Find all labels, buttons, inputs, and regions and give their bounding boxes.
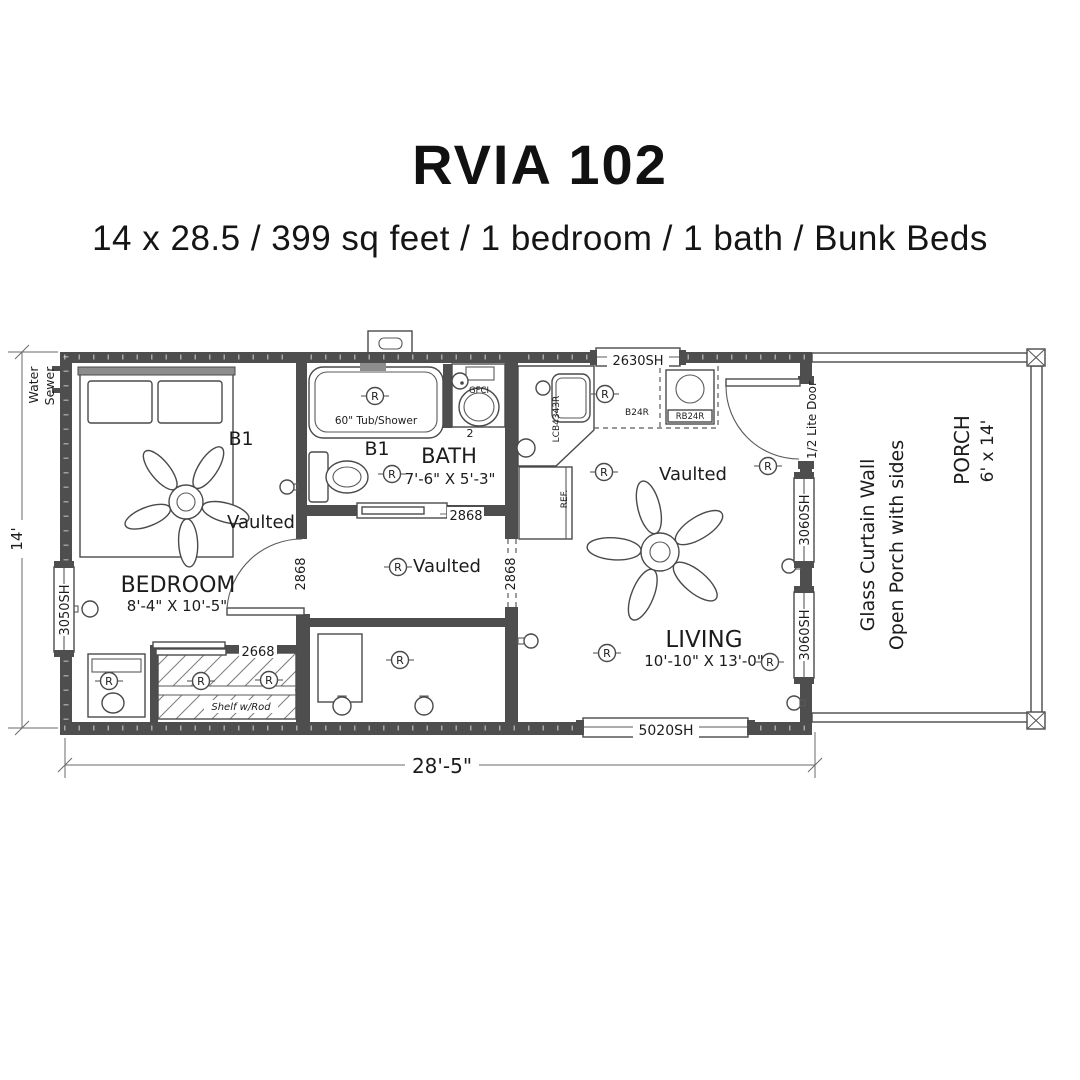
living-label: LIVING — [665, 627, 742, 653]
bedroom-door-size: 2868 — [294, 557, 309, 590]
dimension-width: 28'-5" — [58, 732, 822, 778]
svg-text:R: R — [371, 390, 379, 403]
porch-label: PORCH — [950, 415, 974, 485]
bath-label: BATH — [421, 444, 477, 468]
svg-text:R: R — [600, 466, 608, 479]
vanity-dim: 2 — [467, 427, 474, 440]
svg-text:R: R — [388, 468, 396, 481]
porch-note-line1: Glass Curtain Wall — [857, 459, 879, 632]
window-2630: 2630SH — [590, 348, 686, 369]
exterior-fixture — [368, 331, 412, 355]
bedroom-label: BEDROOM — [121, 573, 236, 598]
floor-plan: 2868 2868 2868 — [0, 0, 1080, 1080]
wall-fixtures — [518, 559, 805, 710]
tub-label: 60" Tub/Shower — [335, 415, 418, 427]
living-front-window-label: 5020SH — [638, 723, 693, 739]
svg-text:R: R — [105, 675, 113, 688]
receptacle-symbol: R — [384, 559, 412, 576]
receptacle-symbol: R — [754, 458, 782, 475]
window-3060-lower: 3060SH — [794, 586, 814, 684]
water-label: Water — [26, 366, 41, 404]
receptacle-symbol: R — [591, 386, 619, 403]
bath-size: 7'-6" X 5'-3" — [405, 470, 496, 488]
fridge-label: REF. — [560, 490, 570, 509]
gfci-label: GFCI — [469, 386, 489, 396]
closet-door-size: 2668 — [241, 645, 274, 660]
svg-text:R: R — [396, 654, 404, 667]
window-5020: 5020SH — [576, 718, 755, 739]
svg-text:R: R — [265, 674, 273, 687]
svg-text:R: R — [766, 656, 774, 669]
sewer-label: Sewer — [42, 366, 57, 406]
porch-note-line2: Open Porch with sides — [886, 440, 908, 650]
hall-cased-opening: 2868 — [504, 539, 519, 607]
receptacle-symbol: R — [386, 652, 414, 669]
range-cabinet-label: RB24R — [676, 412, 705, 422]
hall-opening-size: 2868 — [504, 557, 519, 590]
living-side-window-lower-label: 3060SH — [798, 609, 813, 660]
receptacle-symbol: R — [590, 464, 618, 481]
svg-text:R: R — [394, 561, 402, 574]
bedroom-door: 2868 — [227, 539, 309, 615]
bath-door-size: 2868 — [449, 509, 482, 524]
closet-shelf-label: Shelf w/Rod — [211, 702, 271, 713]
bath-marker: B1 — [364, 438, 389, 460]
bedroom-vaulted: Vaulted — [227, 512, 295, 533]
bunk-room-furniture — [318, 634, 433, 715]
porch-size-label: 6' x 14' — [978, 420, 998, 483]
window-3050: 3050SH — [54, 561, 74, 657]
receptacle-symbol: R — [593, 645, 621, 662]
svg-text:R: R — [601, 388, 609, 401]
bedroom-window-label: 3050SH — [58, 584, 73, 635]
porch: Glass Curtain Wall Open Porch with sides… — [812, 349, 1045, 729]
entry-door: 1/2 Lite Door — [726, 376, 819, 469]
base-cabinet-label: B24R — [625, 408, 649, 418]
corner-cabinet-label: LCB4343R — [552, 396, 562, 443]
living-size: 10'-10" X 13'-0" — [644, 652, 764, 670]
svg-text:R: R — [764, 460, 772, 473]
window-3060-upper: 3060SH — [794, 472, 814, 568]
floor-plan-page: RVIA 102 14 x 28.5 / 399 sq feet / 1 bed… — [0, 0, 1080, 1080]
living-vaulted: Vaulted — [659, 464, 727, 485]
bedroom-marker: B1 — [228, 428, 253, 450]
living-side-window-upper-label: 3060SH — [798, 494, 813, 545]
svg-text:R: R — [603, 647, 611, 660]
receptacle-symbol: R — [378, 466, 406, 483]
kitchen: LCB4343R B24R RB24R REF. — [517, 366, 718, 539]
utility-labels: Water Sewer — [26, 366, 57, 406]
entry-door-label: 1/2 Lite Door — [805, 381, 819, 459]
kitchen-window-label: 2630SH — [612, 354, 663, 369]
height-dimension: 14' — [8, 527, 26, 550]
living-ceiling-fan — [586, 479, 727, 624]
bedroom-size: 8'-4" X 10'-5" — [127, 597, 227, 615]
hall-vaulted: Vaulted — [413, 556, 481, 577]
width-dimension: 28'-5" — [412, 754, 472, 778]
svg-text:R: R — [197, 675, 205, 688]
